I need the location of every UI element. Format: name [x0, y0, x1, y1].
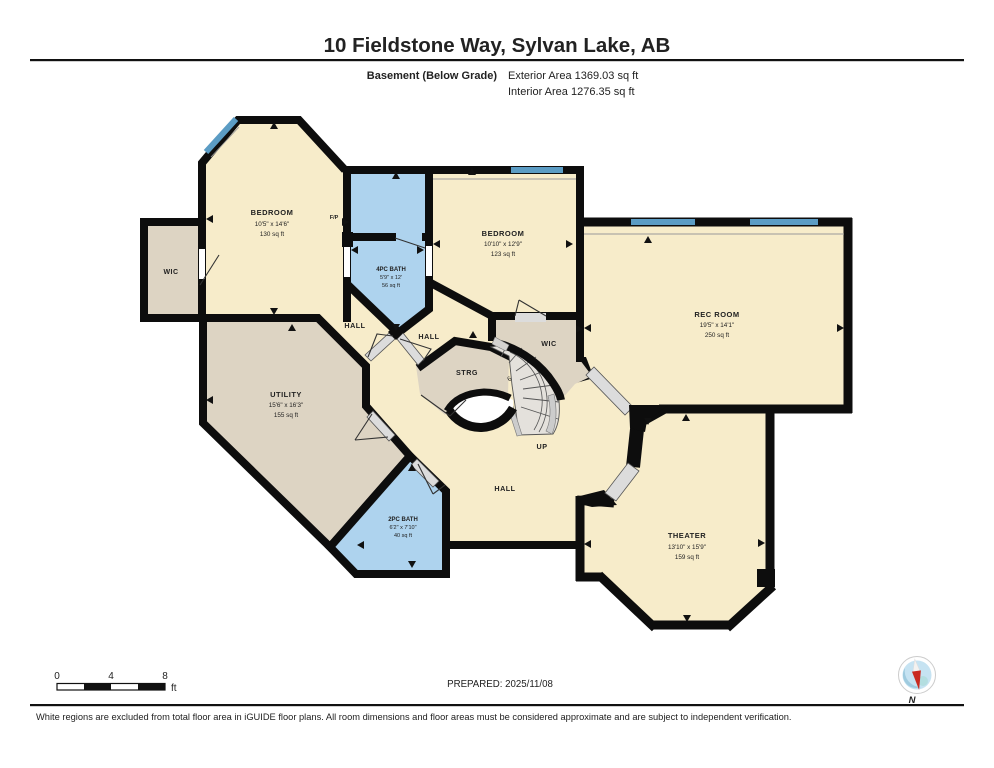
svg-text:159 sq ft: 159 sq ft — [675, 554, 699, 561]
svg-text:REC ROOM: REC ROOM — [694, 310, 739, 319]
svg-text:19'5" x 14'1": 19'5" x 14'1" — [700, 322, 735, 329]
svg-text:UTILITY: UTILITY — [270, 390, 302, 399]
svg-text:123 sq ft: 123 sq ft — [491, 251, 515, 258]
svg-text:0: 0 — [54, 671, 60, 682]
svg-text:HALL: HALL — [344, 321, 365, 330]
svg-text:13'10" x 15'9": 13'10" x 15'9" — [668, 544, 706, 551]
svg-text:155 sq ft: 155 sq ft — [274, 412, 298, 419]
svg-text:10 Fieldstone Way, Sylvan Lake: 10 Fieldstone Way, Sylvan Lake, AB — [324, 34, 671, 57]
svg-text:10'5" x 14'6": 10'5" x 14'6" — [255, 221, 290, 228]
svg-text:WIC: WIC — [541, 339, 556, 348]
svg-text:56 sq ft: 56 sq ft — [382, 283, 401, 289]
svg-text:WIC: WIC — [163, 269, 178, 276]
svg-text:THEATER: THEATER — [668, 531, 706, 540]
svg-text:2PC BATH: 2PC BATH — [388, 517, 418, 523]
svg-text:HALL: HALL — [418, 332, 439, 341]
svg-text:6'2" x 7'10": 6'2" x 7'10" — [389, 525, 416, 531]
svg-text:4: 4 — [108, 671, 114, 682]
svg-text:Exterior Area 1369.03 sq ft: Exterior Area 1369.03 sq ft — [508, 70, 638, 82]
svg-text:PREPARED: 2025/11/08: PREPARED: 2025/11/08 — [447, 679, 553, 690]
svg-text:White regions are excluded fro: White regions are excluded from total fl… — [36, 712, 792, 722]
svg-text:130 sq ft: 130 sq ft — [260, 231, 284, 238]
svg-text:Interior Area 1276.35 sq ft: Interior Area 1276.35 sq ft — [508, 86, 635, 98]
svg-text:BEDROOM: BEDROOM — [482, 229, 525, 238]
svg-text:4PC BATH: 4PC BATH — [376, 267, 406, 273]
svg-text:HALL: HALL — [494, 484, 515, 493]
svg-text:10'10" x 12'9": 10'10" x 12'9" — [484, 241, 522, 248]
svg-text:250 sq ft: 250 sq ft — [705, 332, 729, 339]
svg-text:STRG: STRG — [456, 368, 478, 377]
svg-text:40 sq ft: 40 sq ft — [394, 533, 413, 539]
svg-text:8: 8 — [162, 671, 168, 682]
svg-text:ft: ft — [171, 683, 177, 694]
svg-text:F/P: F/P — [330, 215, 339, 221]
svg-text:5'9" x 12': 5'9" x 12' — [380, 275, 402, 281]
svg-text:UP: UP — [537, 442, 548, 451]
svg-text:15'6" x 16'3": 15'6" x 16'3" — [269, 402, 304, 409]
svg-text:BEDROOM: BEDROOM — [251, 208, 294, 217]
svg-text:Basement (Below Grade): Basement (Below Grade) — [367, 70, 498, 82]
